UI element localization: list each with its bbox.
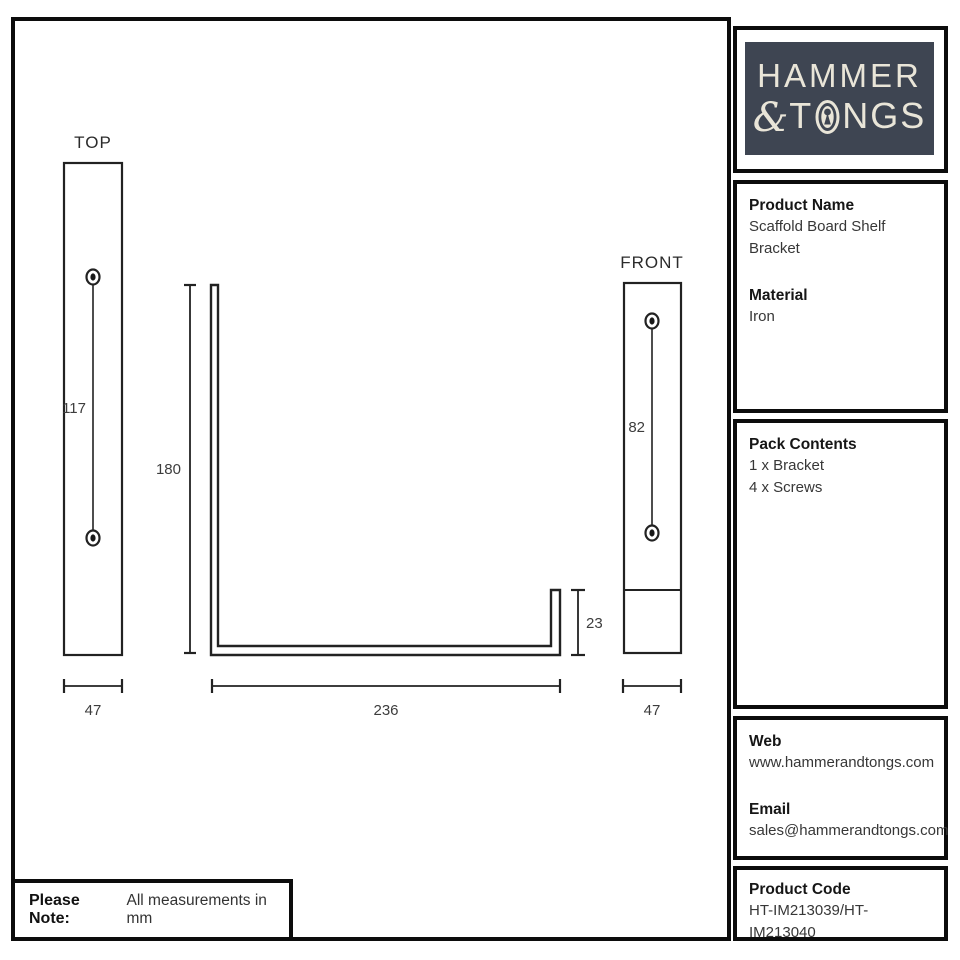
logo-word-hammer: HAMMER — [757, 59, 922, 93]
logo-ampersand: & — [753, 96, 789, 140]
web-heading: Web — [749, 731, 932, 752]
front-screw-hole-lower-center — [649, 529, 654, 536]
logo-panel: HAMMER & T NGS — [733, 26, 948, 173]
side-height-dimension — [184, 285, 196, 653]
keyhole-icon — [815, 99, 840, 135]
side-lip-value: 23 — [586, 615, 603, 632]
side-depth-value: 236 — [373, 702, 398, 719]
product-code-value: HT-IM213039/HT-IM213040 — [749, 900, 932, 944]
hammer-and-tongs-logo: HAMMER & T NGS — [745, 42, 934, 155]
top-width-value: 47 — [85, 702, 102, 719]
front-width-dimension — [623, 679, 681, 693]
pack-contents-panel: Pack Contents 1 x Bracket 4 x Screws — [733, 419, 948, 709]
pack-contents-heading: Pack Contents — [749, 434, 932, 455]
contact-panel: Web www.hammerandtongs.com Email sales@h… — [733, 716, 948, 860]
email-heading: Email — [749, 799, 932, 820]
product-code-heading: Product Code — [749, 879, 932, 900]
logo-letter-t: T — [789, 94, 813, 138]
front-screw-hole-upper-center — [649, 317, 654, 324]
front-width-value: 47 — [644, 702, 661, 719]
top-screw-hole-upper-center — [90, 273, 95, 280]
side-depth-dimension — [212, 679, 560, 693]
side-view-outline — [211, 285, 560, 655]
technical-drawing: TOP FRONT 117 47 180 236 23 82 47 — [15, 21, 727, 937]
material-heading: Material — [749, 285, 932, 306]
top-view-label: TOP — [74, 133, 112, 152]
top-hole-spacing-value: 117 — [62, 400, 86, 417]
web-value: www.hammerandtongs.com — [749, 752, 932, 774]
measurements-note: Please Note: All measurements in mm — [11, 879, 293, 941]
side-lip-dimension — [571, 590, 585, 655]
product-name-heading: Product Name — [749, 195, 932, 216]
logo-letters-ngs: NGS — [842, 94, 926, 138]
product-name-value: Scaffold Board Shelf Bracket — [749, 216, 932, 260]
front-hole-spacing-value: 82 — [628, 419, 645, 436]
material-value: Iron — [749, 306, 932, 328]
pack-item: 1 x Bracket — [749, 455, 932, 477]
drawing-panel: TOP FRONT 117 47 180 236 23 82 47 — [11, 17, 731, 941]
pack-item: 4 x Screws — [749, 477, 932, 499]
top-screw-hole-lower-center — [90, 534, 95, 541]
logo-word-tongs: & T NGS — [753, 93, 927, 139]
front-view-label: FRONT — [620, 253, 684, 272]
email-value: sales@hammerandtongs.com — [749, 820, 932, 842]
top-width-dimension — [64, 679, 122, 693]
note-label: Please Note: — [29, 892, 121, 928]
note-text: All measurements in mm — [127, 892, 289, 928]
side-height-value: 180 — [156, 461, 181, 478]
spec-sheet: TOP FRONT 117 47 180 236 23 82 47 Please… — [0, 0, 960, 960]
product-info-panel: Product Name Scaffold Board Shelf Bracke… — [733, 180, 948, 413]
product-code-panel: Product Code HT-IM213039/HT-IM213040 — [733, 866, 948, 941]
